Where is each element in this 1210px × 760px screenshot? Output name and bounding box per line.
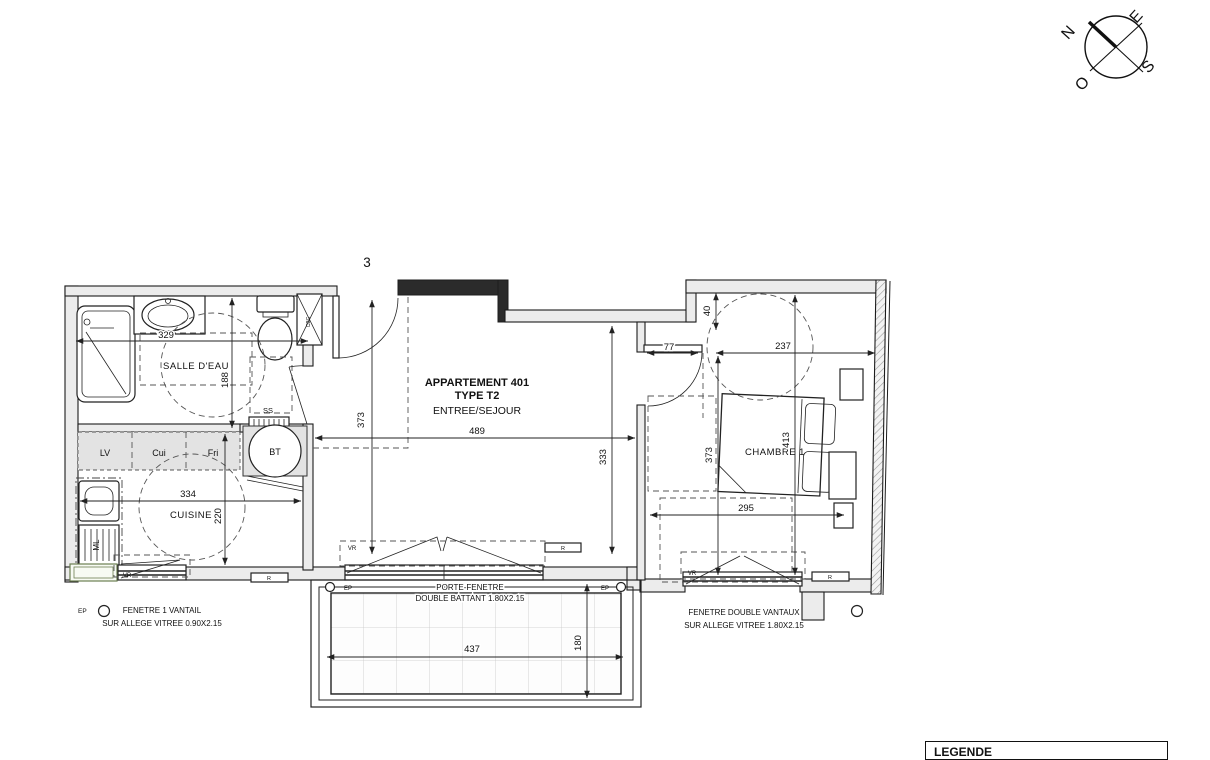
downspout-label: EP — [344, 586, 352, 592]
compass-rose: N E S O — [1058, 7, 1158, 94]
sheet-number: 3 — [363, 255, 371, 270]
fridge-label: Fri — [208, 448, 219, 458]
apartment-name: APPARTEMENT 401 — [425, 377, 529, 389]
bed-icon — [718, 394, 836, 497]
radiator-label: R — [828, 575, 832, 581]
washer-label: ML — [92, 539, 101, 551]
compass-e: E — [1127, 7, 1147, 26]
dim-334: 334 — [180, 489, 196, 500]
radiator-label: R — [267, 576, 271, 582]
radiator-label: R — [561, 546, 565, 552]
legend-box: LEGENDE — [925, 741, 1168, 760]
dim-489: 489 — [469, 426, 485, 437]
dim-295: 295 — [738, 503, 754, 514]
duct-shaft: CBC — [297, 294, 322, 345]
shutter-label: VR — [688, 571, 697, 577]
dim-333: 333 — [598, 449, 609, 465]
water-heater-closet — [243, 425, 307, 491]
washing-machine-icon — [76, 478, 122, 568]
cooktop-label: Cui — [152, 448, 166, 458]
shutter-label: VR — [123, 573, 132, 579]
water-heater-label: BT — [269, 447, 281, 457]
window-left-note-2: SUR ALLEGE VITREE 0.90X2.15 — [102, 619, 222, 628]
door-window-note-2: DOUBLE BATTANT 1.80X2.15 — [416, 594, 525, 603]
compass-n: N — [1058, 23, 1078, 43]
dim-188: 188 — [220, 372, 231, 388]
dim-373-sejour: 373 — [356, 412, 367, 428]
nightstand-icon — [829, 452, 856, 499]
compass-s: S — [1139, 57, 1159, 76]
apartment-type: TYPE T2 — [455, 390, 500, 402]
compass-o: O — [1072, 74, 1093, 95]
room-label-cuisine: CUISINE — [170, 510, 212, 521]
dim-329: 329 — [158, 330, 174, 341]
dim-237: 237 — [775, 341, 791, 352]
dishwasher-label: LV — [100, 448, 110, 458]
downspout-label: EP — [601, 586, 609, 592]
dim-220: 220 — [213, 508, 224, 524]
downspout-icon — [617, 583, 626, 592]
downspout-icon — [852, 606, 863, 617]
duct-label: CBC — [306, 316, 312, 327]
sink-icon — [134, 296, 205, 334]
room-label-chambre: CHAMBRE 1 — [745, 447, 805, 458]
downspout-icon — [99, 606, 110, 617]
dim-40: 40 — [702, 306, 713, 317]
dim-373-chambre: 373 — [704, 447, 715, 463]
dim-77: 77 — [664, 342, 675, 353]
door-window-note-1: PORTE-FENETRE — [436, 583, 503, 592]
floor-plan-page: 3 CBC — [0, 0, 1210, 760]
nightstand-icon — [834, 503, 853, 528]
legend-title: LEGENDE — [926, 742, 1167, 759]
towel-radiator-label: SS — [263, 406, 273, 415]
downspout-label: EP — [78, 608, 87, 615]
dim-437: 437 — [464, 644, 480, 655]
north-needle — [1089, 22, 1116, 47]
chambre-fixtures — [644, 294, 863, 582]
chambre-window: VR — [681, 552, 805, 586]
corner-window — [70, 564, 117, 581]
window-left-note-1: FENETRE 1 VANTAIL — [123, 606, 202, 615]
nightstand-icon — [840, 369, 863, 400]
shutter-label: VR — [348, 546, 357, 552]
dim-413: 413 — [781, 432, 792, 448]
downspout-icon — [326, 583, 335, 592]
floor-plan-drawing: 3 CBC — [0, 0, 1210, 760]
window-right-note-2: SUR ALLEGE VITREE 1.80X2.15 — [684, 621, 804, 630]
cuisine-window: VR — [114, 555, 190, 580]
apartment-room: ENTREE/SEJOUR — [433, 405, 522, 417]
porte-fenetre: VR — [340, 537, 545, 580]
room-label-salle-eau: SALLE D'EAU — [163, 361, 229, 372]
apartment-title: APPARTEMENT 401 TYPE T2 ENTREE/SEJOUR — [425, 377, 529, 417]
dim-180: 180 — [573, 635, 584, 651]
shower-icon — [77, 306, 135, 402]
window-right-note-1: FENETRE DOUBLE VANTAUX — [688, 608, 800, 617]
